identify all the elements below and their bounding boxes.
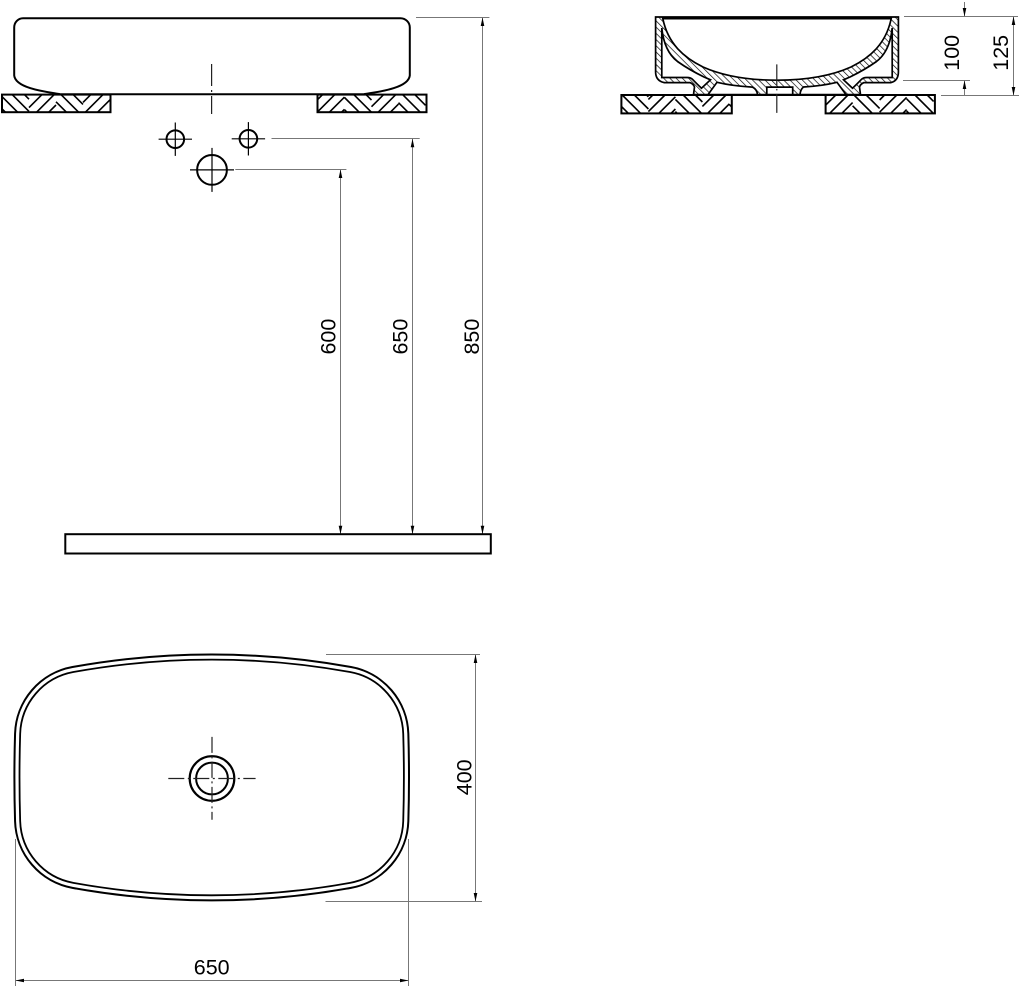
svg-text:125: 125 (989, 35, 1013, 71)
svg-text:600: 600 (316, 319, 340, 355)
svg-text:850: 850 (460, 319, 484, 355)
svg-text:100: 100 (940, 35, 964, 71)
svg-text:650: 650 (388, 319, 412, 355)
svg-text:400: 400 (452, 759, 476, 795)
svg-text:650: 650 (194, 955, 230, 979)
